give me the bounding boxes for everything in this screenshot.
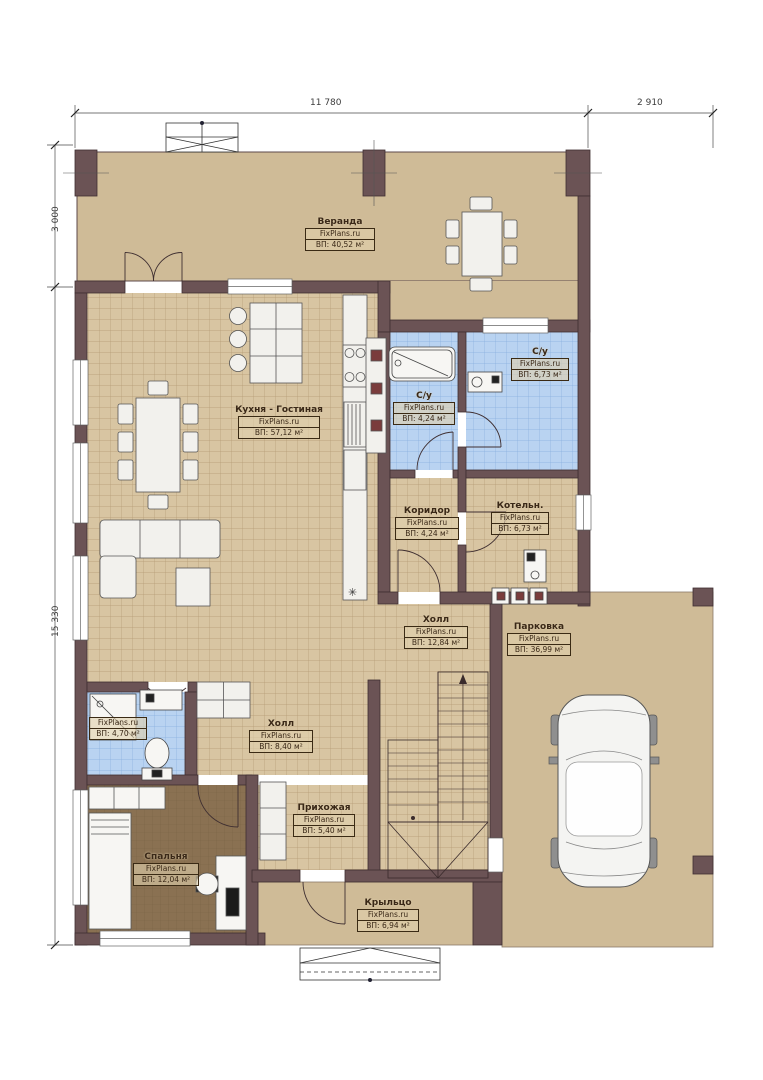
room-area: ВП: 12,84 м² bbox=[405, 637, 467, 648]
room-label-bathroom-sw: FixPlans.ru ВП: 4,70 м² bbox=[89, 717, 147, 740]
brand-watermark: FixPlans.ru bbox=[239, 417, 319, 427]
room-label-bathroom-small: С/у FixPlans.ru ВП: 4,24 м² bbox=[393, 391, 455, 425]
oven-column bbox=[366, 338, 386, 453]
room-label-bathroom-big: С/у FixPlans.ru ВП: 6,73 м² bbox=[511, 347, 569, 381]
steps-bottom bbox=[300, 948, 440, 982]
room-area: ВП: 4,70 м² bbox=[90, 728, 146, 739]
brand-watermark: FixPlans.ru bbox=[358, 910, 418, 920]
room-label-porch: Крыльцо FixPlans.ru ВП: 6,94 м² bbox=[357, 898, 419, 932]
dishwasher bbox=[344, 402, 366, 490]
room-area: ВП: 8,40 м² bbox=[250, 741, 312, 752]
room-area: ВП: 36,99 м² bbox=[508, 644, 570, 655]
room-label-hall: Холл FixPlans.ru ВП: 8,40 м² bbox=[249, 719, 313, 753]
entry-closet bbox=[260, 782, 286, 860]
room-label-veranda: Веранда FixPlans.ru ВП: 40,52 м² bbox=[305, 217, 375, 251]
room-label-entry-hall: Прихожая FixPlans.ru ВП: 5,40 м² bbox=[293, 803, 355, 837]
dimension-left-main: 15 330 bbox=[51, 606, 61, 638]
monitor bbox=[226, 888, 239, 916]
brand-watermark: FixPlans.ru bbox=[90, 718, 146, 728]
washbasin-big-bath bbox=[468, 372, 502, 392]
dimension-top-main: 11 780 bbox=[310, 98, 342, 108]
boiler-floor bbox=[466, 478, 578, 592]
dimension-top-right: 2 910 bbox=[637, 98, 663, 108]
steps-top bbox=[166, 121, 238, 152]
coffee-table bbox=[176, 568, 210, 606]
porch-column bbox=[473, 882, 502, 945]
bar-stool bbox=[230, 355, 247, 372]
car bbox=[549, 695, 659, 887]
bar-stool bbox=[230, 308, 247, 325]
brand-watermark: FixPlans.ru bbox=[508, 634, 570, 644]
bedroom-wardrobe bbox=[89, 787, 165, 809]
hall-wardrobe bbox=[197, 682, 250, 718]
room-label-parking: Парковка FixPlans.ru ВП: 36,99 м² bbox=[507, 622, 571, 656]
room-area: ВП: 4,24 м² bbox=[394, 413, 454, 424]
veranda-table bbox=[462, 212, 502, 276]
room-area: ВП: 4,24 м² bbox=[396, 528, 458, 539]
desk-chair bbox=[196, 873, 218, 895]
parking-stub-mid bbox=[693, 856, 713, 874]
brand-watermark: FixPlans.ru bbox=[512, 359, 568, 369]
dimension-left-top: 3 000 bbox=[51, 206, 61, 232]
brand-watermark: FixPlans.ru bbox=[396, 518, 458, 528]
room-label-bedroom: Спальня FixPlans.ru ВП: 12,04 м² bbox=[133, 852, 199, 886]
kitchen-island bbox=[250, 303, 302, 383]
brand-watermark: FixPlans.ru bbox=[250, 731, 312, 741]
dining-table bbox=[136, 398, 180, 492]
brand-watermark: FixPlans.ru bbox=[294, 815, 354, 825]
washbasin-sw-bath bbox=[140, 690, 182, 710]
room-area: ВП: 6,73 м² bbox=[512, 369, 568, 380]
room-area: ВП: 12,04 м² bbox=[134, 874, 198, 885]
room-label-kitchen-living: Кухня - Гостиная FixPlans.ru ВП: 57,12 м… bbox=[238, 405, 320, 439]
brand-watermark: FixPlans.ru bbox=[492, 513, 548, 523]
bar-stool bbox=[230, 331, 247, 348]
extract-symbol: ✳ bbox=[348, 586, 357, 599]
room-area: ВП: 57,12 м² bbox=[239, 427, 319, 438]
brand-watermark: FixPlans.ru bbox=[306, 229, 374, 239]
room-area: ВП: 40,52 м² bbox=[306, 239, 374, 250]
floor-plan-page: ✳ bbox=[0, 0, 763, 1080]
room-area: ВП: 5,40 м² bbox=[294, 825, 354, 836]
stove bbox=[343, 345, 367, 387]
car-roof bbox=[566, 762, 642, 836]
room-label-corridor: Коридор FixPlans.ru ВП: 4,24 м² bbox=[395, 506, 459, 540]
parking-stub-top bbox=[693, 588, 713, 606]
room-area: ВП: 6,94 м² bbox=[358, 920, 418, 931]
bed bbox=[89, 813, 131, 929]
brand-watermark: FixPlans.ru bbox=[394, 403, 454, 413]
room-label-boiler: Котельн. FixPlans.ru ВП: 6,73 м² bbox=[491, 501, 549, 535]
room-area: ВП: 6,73 м² bbox=[492, 523, 548, 534]
brand-watermark: FixPlans.ru bbox=[405, 627, 467, 637]
bathtub bbox=[389, 347, 455, 381]
kitchen-counter bbox=[343, 295, 367, 600]
room-label-stair-hall: Холл FixPlans.ru ВП: 12,84 м² bbox=[404, 615, 468, 649]
brand-watermark: FixPlans.ru bbox=[134, 864, 198, 874]
living-hall-floor bbox=[87, 600, 380, 682]
